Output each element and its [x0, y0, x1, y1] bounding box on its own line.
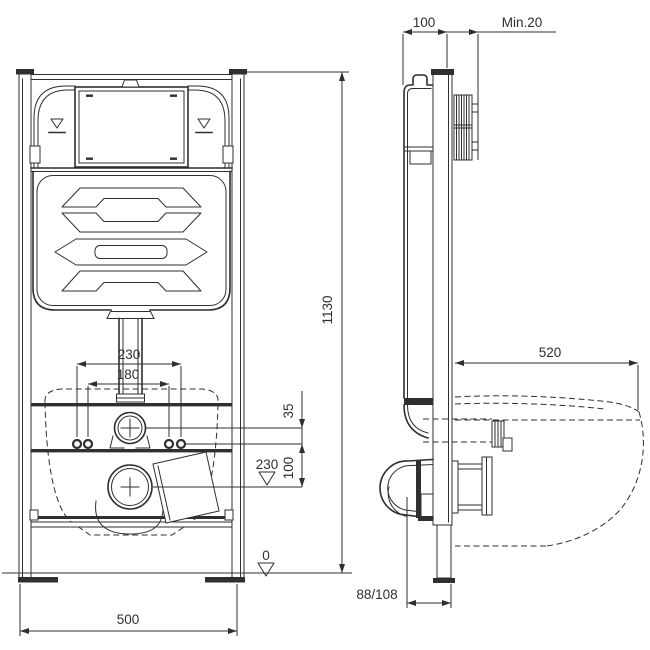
rail-foot-side	[437, 525, 451, 578]
post-cap-left	[16, 69, 34, 75]
level-datum-230: 230	[256, 457, 279, 485]
frame-foot-left	[18, 577, 58, 583]
dim-label-520: 520	[539, 345, 562, 360]
frame-bottom-rail	[31, 522, 232, 527]
panel-screw-mark	[86, 158, 93, 160]
level-datum-icon	[259, 472, 275, 485]
foot-plate-side	[433, 578, 455, 583]
tank-rib	[62, 271, 201, 291]
dim-label-100-offset: 100	[281, 457, 296, 480]
drawing-canvas: 230 180 35 100 230 0	[0, 0, 650, 650]
panel-tab	[122, 80, 139, 87]
dim-label-230-bolts: 230	[118, 347, 141, 362]
tank-rib	[62, 213, 201, 232]
side-view: 100 Min.20 520 88/108	[356, 15, 643, 608]
rail-cap-side	[431, 69, 454, 75]
dim-label-1130: 1130	[320, 295, 335, 324]
access-panel-inner	[79, 91, 184, 163]
post-cap-right	[229, 69, 247, 75]
outlet-collar	[452, 461, 458, 513]
mounting-rail-middle	[31, 449, 232, 452]
mounting-rail-lower	[31, 516, 232, 519]
tank-rib	[55, 239, 207, 265]
panel-screw-mark	[170, 158, 177, 160]
dim-label-100-depth: 100	[413, 15, 436, 30]
dim-label-180-bolts: 180	[117, 367, 140, 382]
level-datum-icon	[258, 563, 274, 576]
dim-frame-width: 500	[20, 584, 237, 636]
dim-label-88-108: 88/108	[356, 587, 397, 602]
dim-label-35: 35	[281, 403, 296, 418]
water-level-icon-right	[196, 119, 212, 133]
cistern-side-profile	[404, 75, 433, 438]
rail-clip-left	[30, 510, 38, 520]
dim-bowl-depth: 520	[455, 345, 638, 410]
frame-top-rail	[31, 75, 232, 80]
water-level-icon-left	[49, 119, 65, 133]
installation-drawing: 230 180 35 100 230 0	[0, 0, 650, 650]
dim-label-500: 500	[117, 612, 140, 627]
tank-rib	[62, 188, 201, 207]
frame-post-left	[19, 74, 31, 578]
water-supply-connection	[110, 413, 150, 449]
frame-post-right	[232, 74, 244, 578]
dim-frame-height: 1130	[247, 72, 349, 573]
level-datum-0: 0	[258, 548, 274, 576]
clip-left	[30, 146, 40, 163]
dim-label-min20: Min.20	[502, 15, 543, 30]
level-label-0: 0	[262, 548, 270, 563]
panel-screw-mark	[170, 95, 177, 97]
level-label-230: 230	[256, 457, 279, 472]
flush-actuator-unit	[454, 95, 478, 160]
clip-right	[223, 146, 233, 163]
frame-foot-right	[205, 577, 245, 583]
outlet-body	[458, 464, 482, 510]
frame-rail-side	[433, 70, 452, 525]
rail-clip-right	[225, 510, 233, 520]
dim-depth-and-cover: 100 Min.20	[403, 15, 556, 160]
front-view: 230 180 35 100 230 0	[2, 69, 352, 636]
panel-screw-mark	[86, 95, 93, 97]
cistern-top-section	[30, 80, 233, 172]
tank-bracket-side	[404, 398, 433, 405]
cistern-tank	[33, 172, 230, 311]
mounting-rail-upper	[31, 403, 232, 406]
